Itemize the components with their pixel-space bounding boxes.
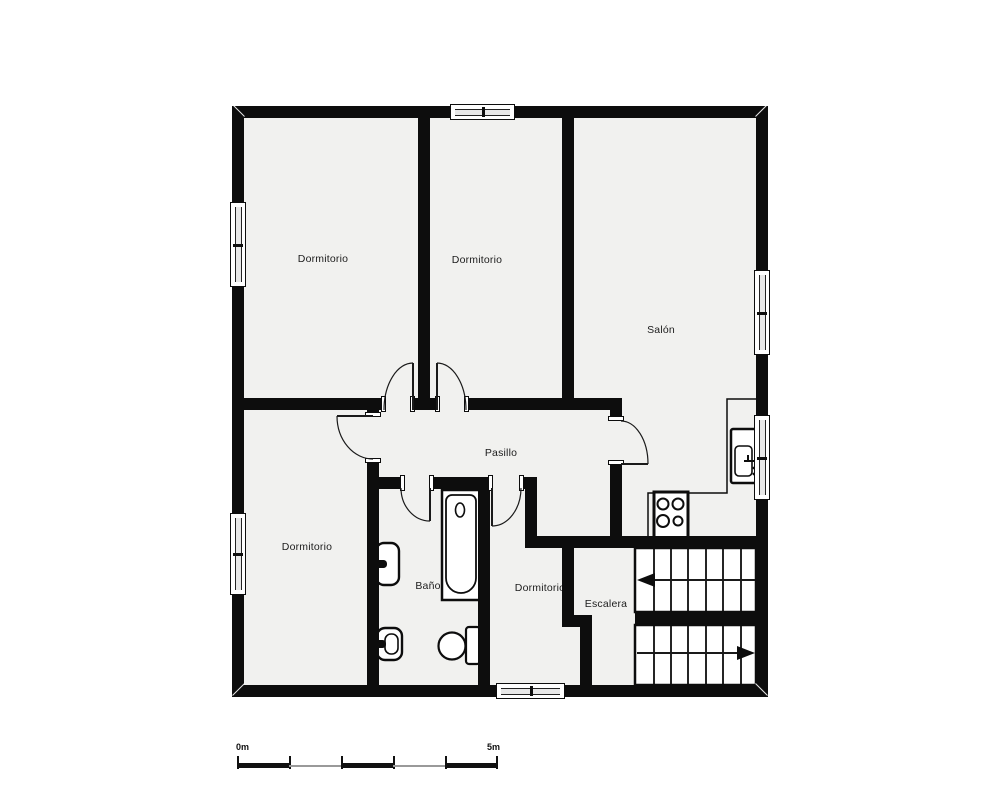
room-label-stairs: Escalera [585,598,627,610]
window-left-lower [230,513,246,595]
door-jamb [381,396,386,412]
room-label-bedroom-top-left: Dormitorio [298,253,348,265]
wall-bedroom1-bedroom2 [418,118,430,410]
room-label-bedroom-bottom-middle: Dormitorio [515,582,565,594]
wall-bathroom-bedroom4 [478,477,490,697]
scale-segment-black [237,763,289,768]
scale-tick [289,756,291,769]
window-bottom [496,683,565,699]
wall-bedroom4-stairs-upper [562,536,574,622]
window-left-upper [230,202,246,287]
door-opening-bedroom-top-middle [437,398,467,410]
room-label-living-room: Salón [647,324,675,336]
window-right-upper [754,270,770,355]
door-opening-bedroom-bottom-middle [490,477,522,489]
door-opening-bathroom [402,477,432,489]
window-top [450,104,515,120]
room-label-hallway: Pasillo [485,447,517,459]
door-jamb [365,458,381,463]
door-jamb [400,475,405,491]
room-label-bedroom-bottom-left: Dormitorio [282,541,332,553]
door-jamb [435,396,440,412]
door-opening-kitchen [610,418,622,463]
window-right-lower [754,415,770,500]
door-jamb [464,396,469,412]
scale-end-label: 5m [487,742,500,752]
floor-plan-canvas: Dormitorio Dormitorio Salón Pasillo Dorm… [0,0,1000,800]
wall-bedroom2-livingroom [562,118,574,398]
door-opening-bedroom-bottom-left [367,414,379,461]
door-jamb [608,416,624,421]
door-jamb [410,396,415,412]
scale-segment-gray [289,765,341,767]
wall-bedroom4-stairs-lower [580,615,592,697]
door-jamb [429,475,434,491]
room-label-bathroom: Baño [415,580,440,592]
room-label-bedroom-top-middle: Dormitorio [452,254,502,266]
scale-tick [393,756,395,769]
door-jamb [519,475,524,491]
door-jamb [488,475,493,491]
outer-wall-right [756,106,768,697]
wall-closet-left [525,477,537,548]
scale-segment-black [445,763,498,768]
scale-start-label: 0m [236,742,249,752]
scale-segment-gray [393,765,445,767]
door-opening-bedroom-top-left [383,398,413,410]
scale-segment-black [341,763,393,768]
door-jamb [365,412,381,417]
door-jamb [608,460,624,465]
